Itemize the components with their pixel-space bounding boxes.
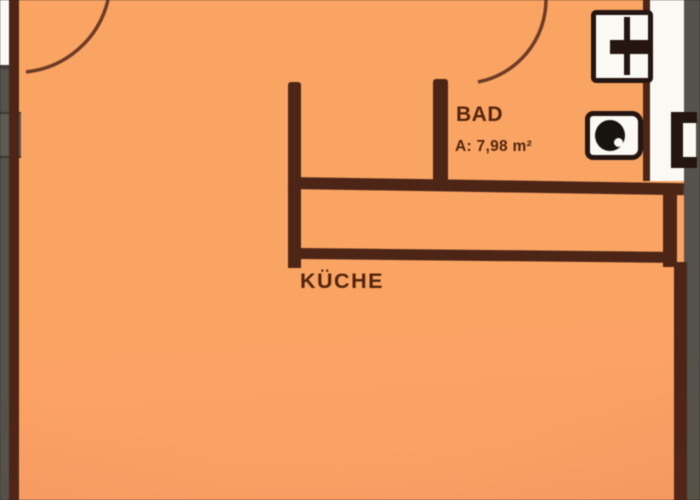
bathroom-door-arc — [478, 0, 546, 82]
wall-bathroom-bottom — [288, 177, 684, 195]
shaft-jamb-top — [671, 112, 697, 123]
entry-door-arc — [26, 0, 108, 72]
wall-exterior-right — [674, 262, 687, 500]
sink-icon — [591, 10, 653, 83]
toilet-flush-dot — [614, 138, 623, 147]
toilet-icon — [585, 111, 643, 160]
wall-kitchen-left — [288, 82, 301, 268]
wall-bathroom-left — [433, 79, 448, 183]
room-label-kueche: KÜCHE — [300, 269, 384, 294]
wall-exterior-left — [9, 0, 19, 500]
floorplan: BAD A: 7,98 m² KÜCHE — [0, 0, 700, 500]
shaft-jamb-bottom — [671, 157, 697, 168]
wall-kitchen-right — [663, 187, 677, 267]
sink-tap — [610, 40, 650, 54]
wall-kitchen-bottom — [300, 248, 668, 263]
shaft-opening — [684, 123, 696, 158]
toilet-bowl — [595, 120, 625, 151]
room-area-bad: A: 7,98 m² — [455, 138, 532, 156]
room-label-bad: BAD — [456, 103, 503, 127]
